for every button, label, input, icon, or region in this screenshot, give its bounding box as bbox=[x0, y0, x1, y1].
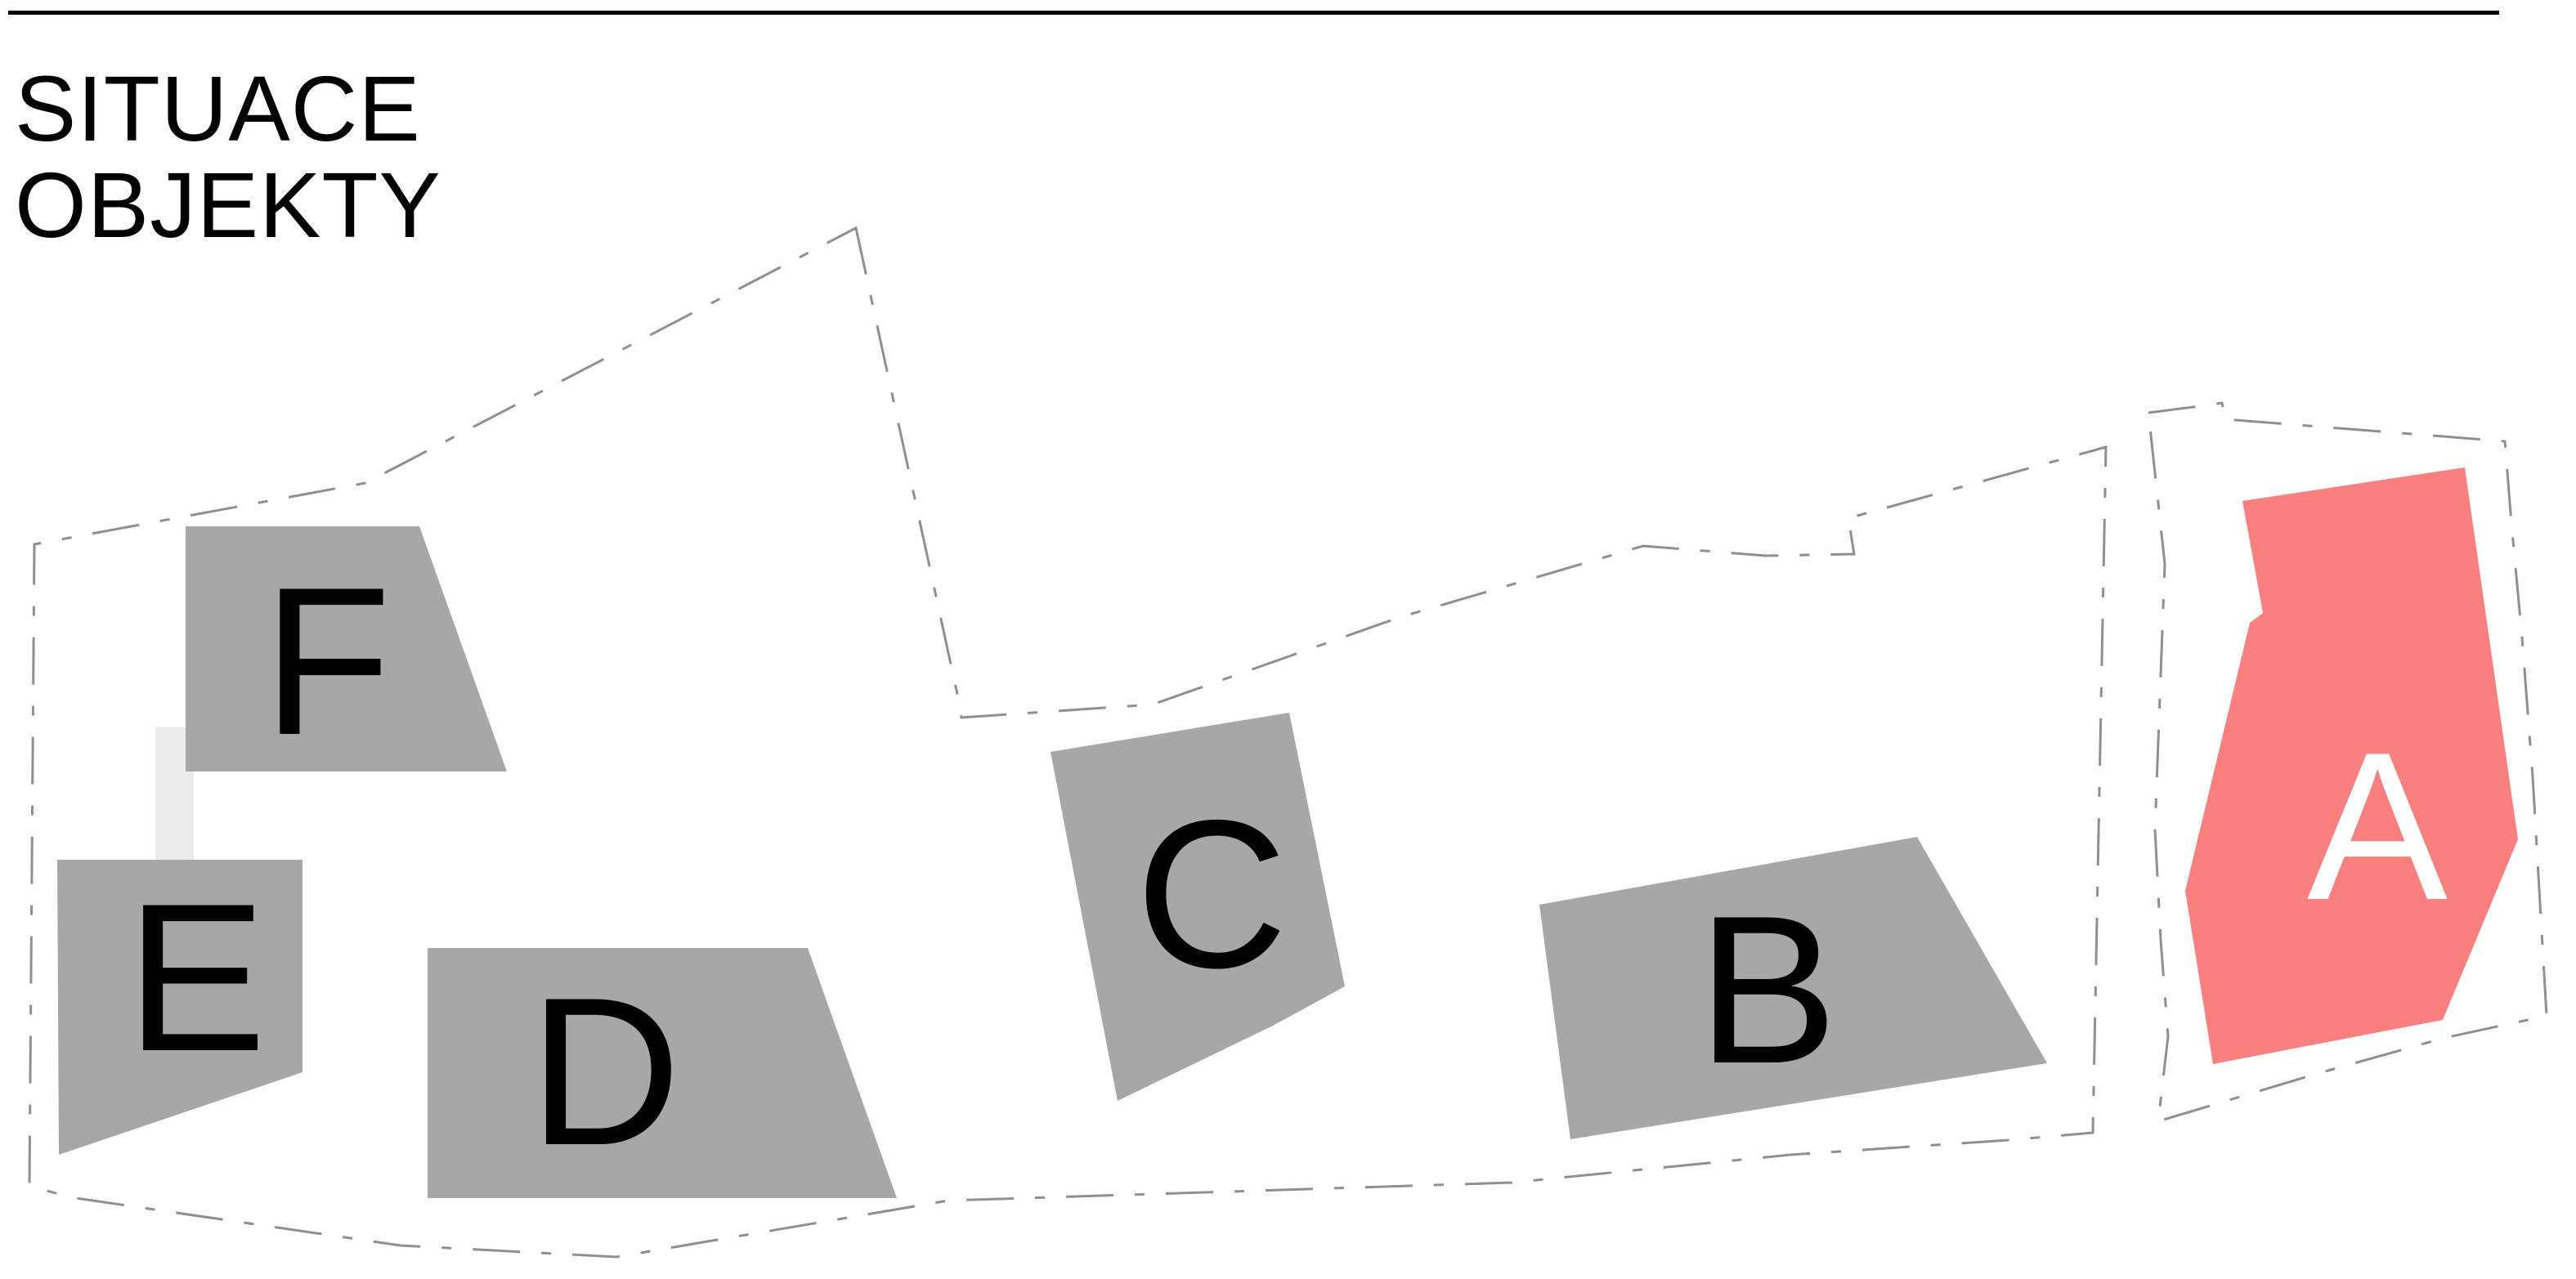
building-d-label: D bbox=[529, 953, 681, 1189]
title-top-rule bbox=[8, 11, 2499, 15]
building-f-label: F bbox=[262, 543, 392, 779]
site-plan-page: A B C D E F SITUACE OBJEKTY bbox=[0, 0, 2576, 1279]
drawing-title-line-2: OBJEKTY bbox=[15, 157, 441, 253]
building-e-label: E bbox=[126, 859, 267, 1095]
drawing-title-line-1: SITUACE bbox=[15, 60, 441, 157]
drawing-title: SITUACE OBJEKTY bbox=[15, 60, 441, 253]
building-c-label: C bbox=[1136, 776, 1288, 1012]
building-b-label: B bbox=[1697, 871, 1838, 1107]
building-a-label: A bbox=[2307, 708, 2448, 944]
